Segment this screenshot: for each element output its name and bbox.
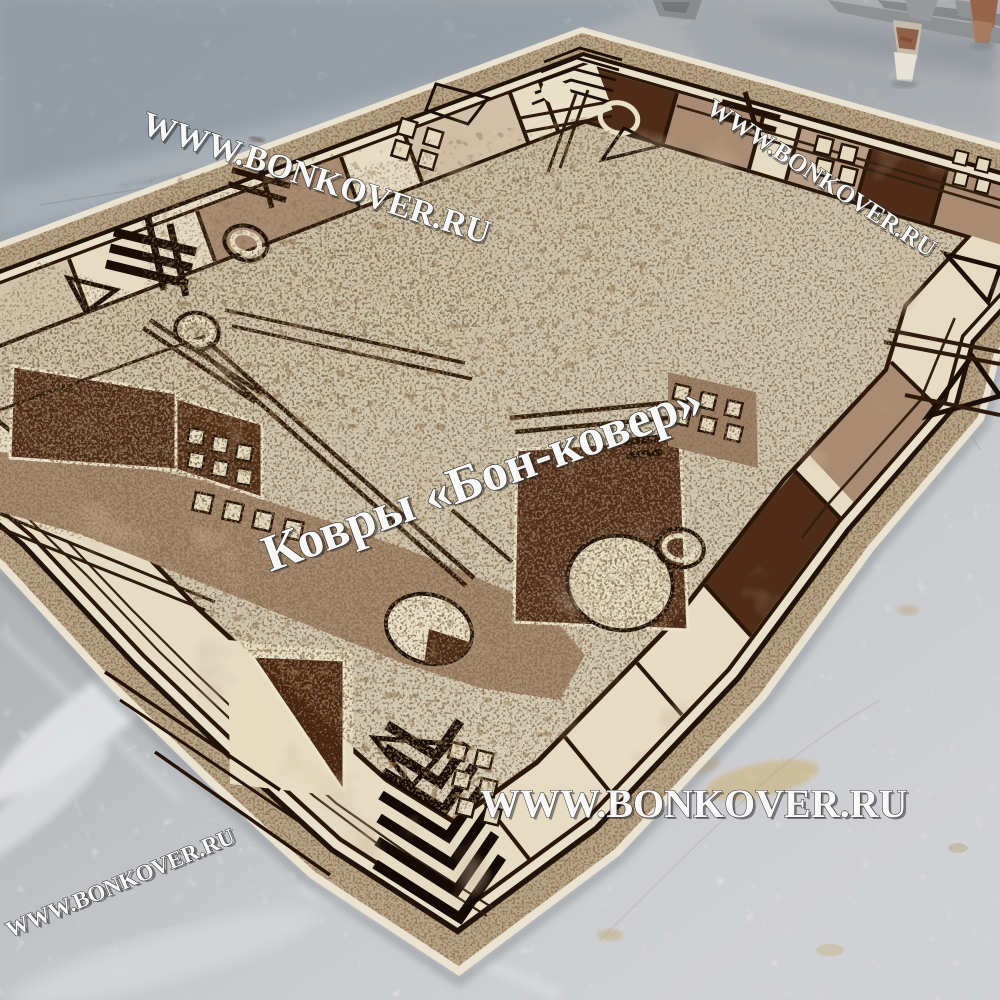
svg-text:WWW.BONKOVER.RU: WWW.BONKOVER.RU xyxy=(480,781,907,826)
